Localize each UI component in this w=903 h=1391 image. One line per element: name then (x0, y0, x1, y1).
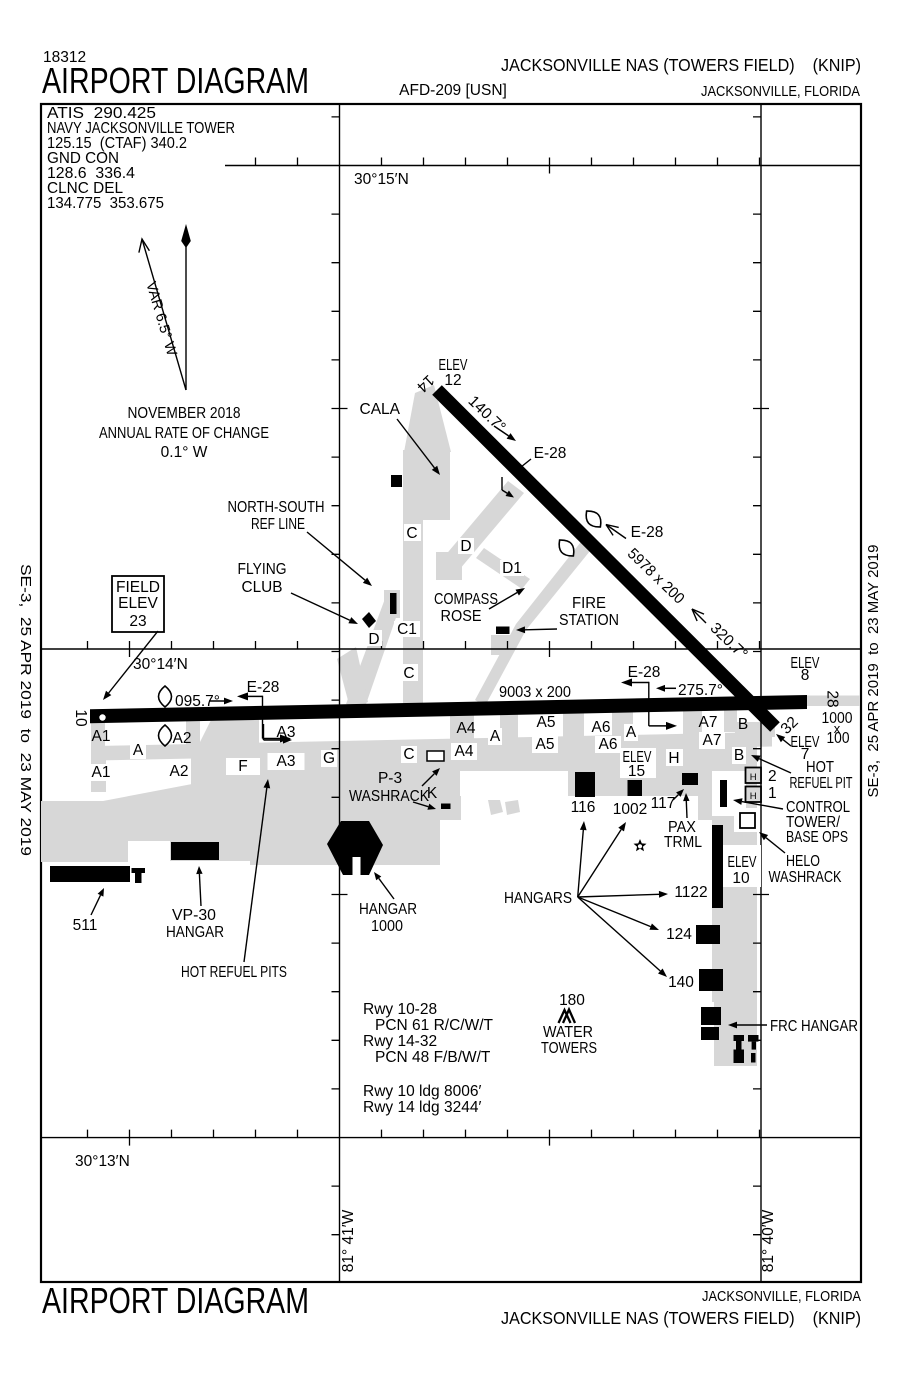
svg-text:C: C (403, 746, 414, 763)
svg-text:1000: 1000 (371, 918, 403, 935)
svg-text:PCN 48 F/B/W/T: PCN 48 F/B/W/T (375, 1049, 491, 1066)
svg-text:A6: A6 (599, 736, 618, 753)
svg-text:FRC HANGAR: FRC HANGAR (770, 1018, 858, 1035)
svg-text:REF LINE: REF LINE (251, 516, 305, 533)
svg-text:9003 x 200: 9003 x 200 (499, 684, 571, 701)
svg-text:A2: A2 (170, 763, 189, 780)
svg-text:12: 12 (444, 372, 461, 389)
svg-text:VP-30: VP-30 (172, 907, 216, 924)
svg-text:COMPASS: COMPASS (434, 591, 498, 608)
svg-text:8: 8 (801, 667, 810, 684)
svg-text:E-28: E-28 (247, 679, 280, 696)
svg-text:BASE OPS: BASE OPS (786, 829, 848, 846)
svg-text:TRML: TRML (664, 834, 702, 851)
svg-text:WATER: WATER (543, 1024, 593, 1041)
svg-text:HANGAR: HANGAR (166, 924, 224, 941)
svg-text:511: 511 (73, 917, 98, 934)
svg-text:D: D (460, 538, 471, 555)
svg-text:JACKSONVILLE, FLORIDA: JACKSONVILLE, FLORIDA (701, 84, 860, 100)
svg-text:28: 28 (824, 690, 841, 707)
svg-text:A: A (490, 728, 501, 745)
svg-text:HOT REFUEL PITS: HOT REFUEL PITS (181, 964, 287, 981)
svg-text:ELEV: ELEV (118, 595, 158, 612)
svg-text:23: 23 (129, 613, 146, 630)
svg-text:E-28: E-28 (628, 664, 661, 681)
svg-text:REFUEL PIT: REFUEL PIT (790, 775, 853, 792)
svg-text:WASHRACK: WASHRACK (769, 869, 843, 886)
svg-text:116: 116 (571, 799, 596, 816)
svg-text:NOVEMBER 2018: NOVEMBER 2018 (128, 405, 241, 422)
svg-text:A3: A3 (277, 753, 296, 770)
svg-text:D: D (368, 631, 379, 648)
svg-text:TOWERS: TOWERS (541, 1040, 597, 1057)
svg-text:JACKSONVILLE NAS (TOWERS FIELD: JACKSONVILLE NAS (TOWERS FIELD) (KNIP) (501, 55, 861, 75)
svg-text:SE-3, 25 APR 2019 to 23 MAY: SE-3, 25 APR 2019 to 23 MAY 2019 (865, 545, 882, 798)
svg-text:A1: A1 (92, 764, 111, 781)
svg-text:134.775 353.675: 134.775 353.675 (47, 195, 164, 212)
svg-text:AIRPORT DIAGRAM: AIRPORT DIAGRAM (42, 60, 309, 101)
svg-text:H: H (750, 772, 757, 783)
svg-text:1122: 1122 (674, 884, 707, 901)
svg-text:NORTH-SOUTH: NORTH-SOUTH (228, 499, 325, 516)
svg-text:30°15′N: 30°15′N (354, 171, 409, 188)
svg-text:124: 124 (666, 926, 692, 943)
svg-text:C: C (403, 665, 414, 682)
svg-text:HANGAR: HANGAR (359, 901, 417, 918)
svg-text:AIRPORT DIAGRAM: AIRPORT DIAGRAM (42, 1280, 309, 1321)
svg-text:2: 2 (768, 768, 777, 785)
svg-text:E-28: E-28 (534, 445, 567, 462)
svg-text:A5: A5 (537, 714, 556, 731)
svg-text:30°13′N: 30°13′N (75, 1153, 130, 1170)
svg-text:180: 180 (559, 992, 585, 1009)
svg-text:HOT: HOT (806, 759, 834, 776)
svg-text:A4: A4 (455, 743, 474, 760)
svg-text:1002: 1002 (613, 801, 647, 818)
svg-text:117: 117 (651, 795, 676, 812)
svg-text:81° 40′W: 81° 40′W (760, 1209, 777, 1272)
svg-text:B: B (738, 716, 748, 733)
svg-text:A7: A7 (703, 732, 722, 749)
svg-text:FLYING: FLYING (238, 561, 287, 578)
svg-text:CALA: CALA (360, 401, 401, 418)
svg-text:A6: A6 (592, 719, 611, 736)
svg-text:1: 1 (768, 785, 777, 802)
svg-text:10: 10 (72, 709, 89, 727)
svg-text:B: B (734, 747, 744, 764)
svg-text:CLUB: CLUB (242, 579, 283, 596)
svg-text:JACKSONVILLE, FLORIDA: JACKSONVILLE, FLORIDA (702, 1289, 861, 1305)
svg-text:Rwy 14 ldg 3244′: Rwy 14 ldg 3244′ (363, 1099, 481, 1116)
svg-text:A: A (133, 742, 144, 759)
svg-text:100: 100 (827, 730, 850, 747)
svg-text:D1: D1 (502, 560, 522, 577)
svg-text:81° 41′W: 81° 41′W (340, 1209, 357, 1272)
svg-text:15: 15 (628, 763, 645, 780)
svg-text:H: H (750, 791, 757, 802)
svg-text:F: F (238, 758, 247, 775)
svg-text:A5: A5 (536, 736, 555, 753)
svg-text:Rwy 10-28: Rwy 10-28 (363, 1001, 437, 1018)
svg-text:AFD-209 [USN]: AFD-209 [USN] (399, 82, 507, 99)
svg-text:HELO: HELO (786, 853, 820, 870)
svg-text:30°14′N: 30°14′N (133, 656, 188, 673)
svg-text:140: 140 (668, 974, 694, 991)
svg-text:FIRE: FIRE (572, 595, 606, 612)
svg-text:10: 10 (732, 870, 750, 887)
svg-text:FIELD: FIELD (116, 579, 160, 596)
svg-text:Rwy 14-32: Rwy 14-32 (363, 1033, 437, 1050)
svg-text:C: C (406, 525, 417, 542)
svg-text:ELEV: ELEV (728, 854, 757, 871)
svg-text:A: A (626, 724, 637, 741)
svg-text:C1: C1 (397, 621, 417, 638)
svg-text:0.1° W: 0.1° W (161, 444, 208, 461)
svg-text:SE-3, 25 APR 2019 to 23 MAY: SE-3, 25 APR 2019 to 23 MAY 2019 (17, 564, 34, 856)
svg-text:E-28: E-28 (631, 524, 664, 541)
svg-text:STATION: STATION (559, 612, 619, 629)
svg-text:JACKSONVILLE NAS (TOWERS FIELD: JACKSONVILLE NAS (TOWERS FIELD) (KNIP) (501, 1308, 861, 1328)
svg-text:275.7°: 275.7° (678, 682, 723, 699)
svg-text:H: H (668, 750, 679, 767)
svg-text:K: K (427, 785, 438, 802)
svg-text:A7: A7 (699, 714, 718, 731)
svg-text:ANNUAL RATE OF CHANGE: ANNUAL RATE OF CHANGE (99, 425, 269, 442)
svg-text:WASHRACK: WASHRACK (349, 788, 430, 805)
svg-text:Rwy 10 ldg 8006′: Rwy 10 ldg 8006′ (363, 1083, 481, 1100)
svg-text:G: G (323, 750, 335, 767)
svg-text:HANGARS: HANGARS (504, 890, 572, 907)
svg-text:PCN 61 R/C/W/T: PCN 61 R/C/W/T (375, 1017, 494, 1034)
svg-text:A2: A2 (173, 730, 192, 747)
svg-text:A1: A1 (92, 728, 111, 745)
svg-text:ROSE: ROSE (441, 608, 482, 625)
svg-text:A4: A4 (457, 720, 476, 737)
svg-text:P-3: P-3 (378, 770, 402, 787)
